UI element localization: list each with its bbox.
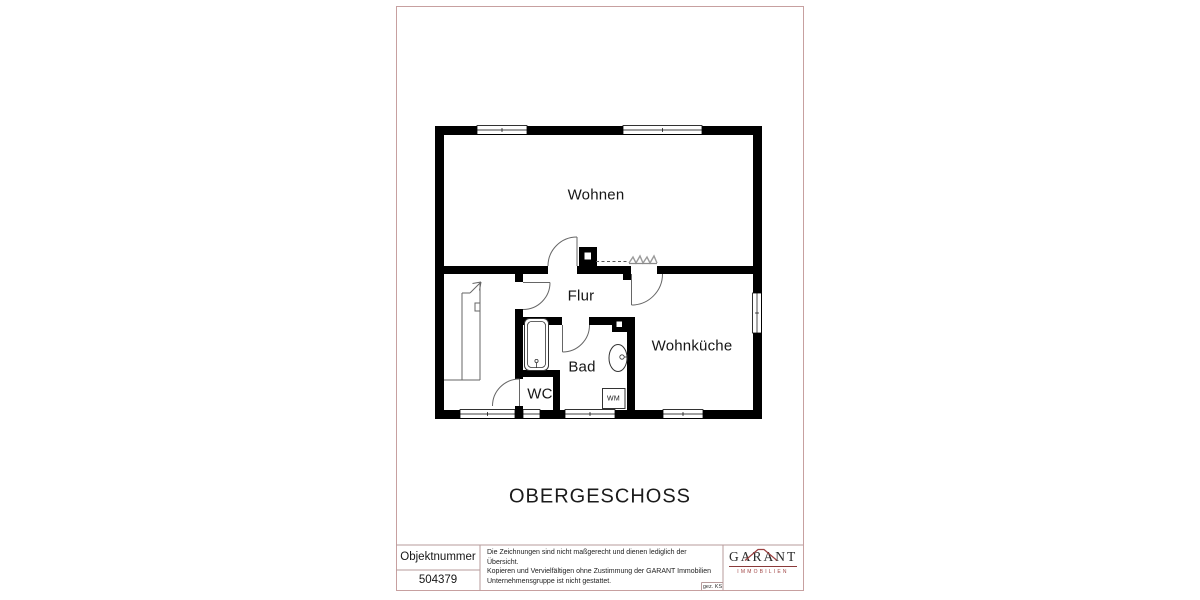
room-label-bad: Bad — [568, 359, 595, 376]
logo-subtitle: IMMOBILIEN — [729, 569, 797, 575]
object-number-value: 504379 — [419, 574, 457, 586]
disclaimer-line: Kopieren und Vervielfältigen ohne Zustim… — [487, 567, 719, 577]
roof-icon — [729, 548, 797, 561]
bathtub-icon — [525, 319, 549, 371]
window — [523, 410, 540, 419]
floor-title: OBERGESCHOSS — [509, 486, 691, 509]
railing-hatch — [596, 256, 657, 264]
floor-plan-drawing — [0, 0, 1200, 600]
window — [753, 293, 762, 333]
door-swing — [548, 237, 577, 266]
room-label-flur: Flur — [568, 288, 595, 305]
signed-by-label: gez. KS — [703, 584, 722, 590]
sink-icon — [609, 345, 628, 372]
stairs-icon — [444, 282, 481, 380]
disclaimer-line: Die Zeichnungen sind nicht maßgerecht un… — [487, 548, 719, 567]
window — [565, 410, 615, 419]
door-swing — [563, 325, 590, 352]
object-number-label: Objektnummer — [400, 551, 475, 563]
page: Wohnen Flur Bad WC Wohnküche WM OBERGESC… — [0, 0, 1200, 600]
window — [663, 410, 703, 419]
washing-machine-label: WM — [607, 395, 620, 402]
window — [460, 410, 515, 419]
door-swing — [493, 379, 520, 406]
garant-logo: GARANT IMMOBILIEN — [729, 548, 797, 575]
door-swing — [632, 274, 663, 305]
window — [477, 126, 527, 135]
room-label-wc: WC — [527, 386, 552, 403]
disclaimer-line: Unternehmensgruppe ist nicht gestattet. — [487, 577, 719, 587]
door-swing — [523, 283, 550, 310]
window — [623, 126, 702, 135]
room-label-wohnkueche: Wohnküche — [652, 338, 733, 355]
disclaimer-text: Die Zeichnungen sind nicht maßgerecht un… — [487, 548, 719, 586]
room-label-wohnen: Wohnen — [568, 187, 625, 204]
